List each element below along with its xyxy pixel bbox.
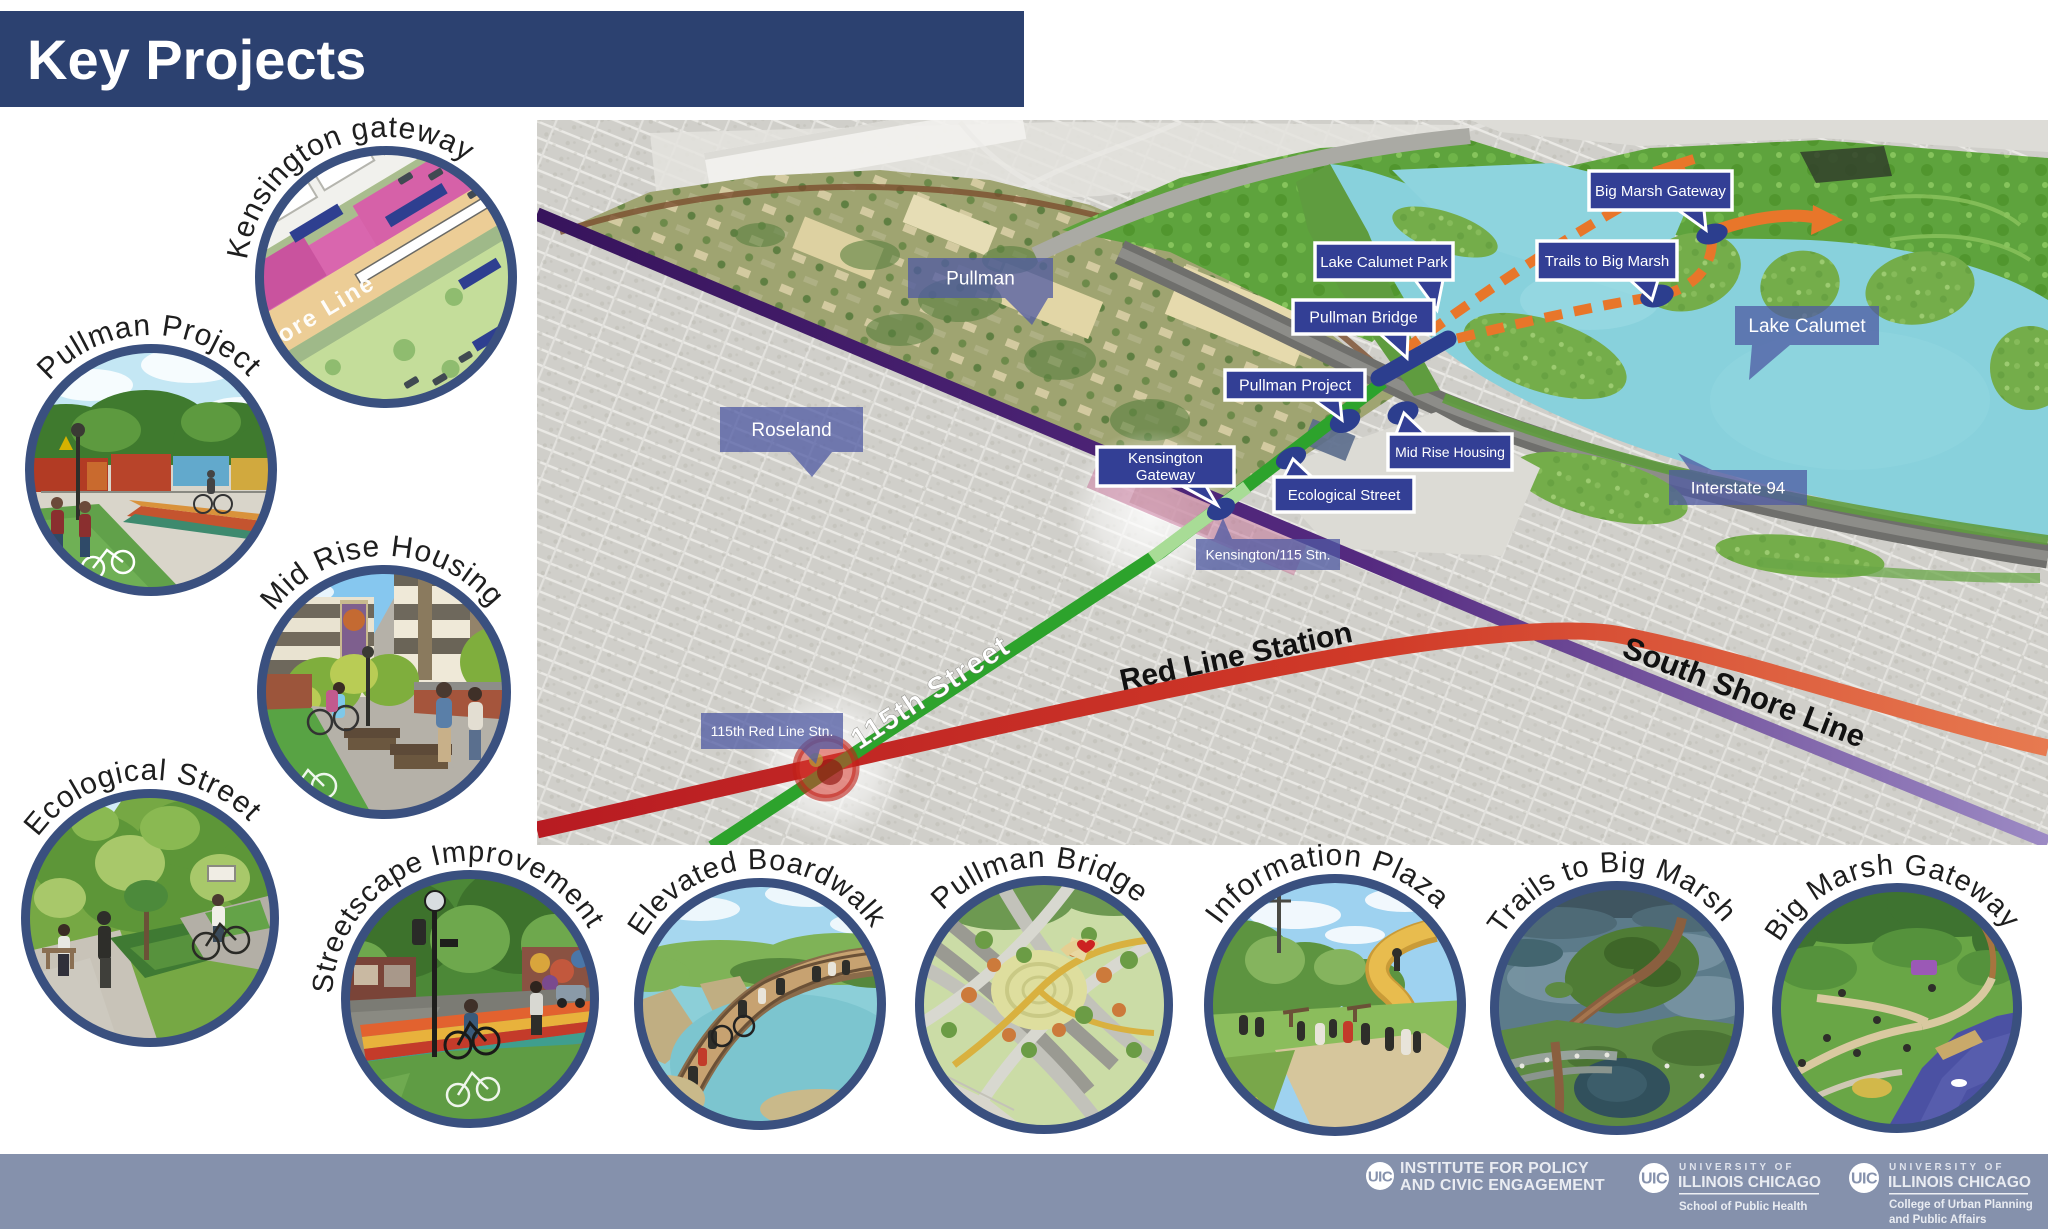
svg-text:Kensington: Kensington bbox=[1128, 450, 1203, 467]
svg-text:UNIVERSITY OF: UNIVERSITY OF bbox=[1679, 1162, 1795, 1173]
svg-text:UNIVERSITY OF: UNIVERSITY OF bbox=[1889, 1162, 2005, 1173]
svg-text:Roseland: Roseland bbox=[751, 420, 831, 441]
svg-text:Ecological Street: Ecological Street bbox=[1288, 487, 1401, 504]
svg-text:Lake Calumet: Lake Calumet bbox=[1748, 316, 1866, 337]
svg-text:UIC: UIC bbox=[1368, 1168, 1393, 1185]
svg-text:Mid Rise Housing: Mid Rise Housing bbox=[1395, 444, 1505, 460]
svg-text:Key Projects: Key Projects bbox=[27, 28, 366, 91]
svg-text:Pullman: Pullman bbox=[946, 269, 1015, 290]
svg-text:UIC: UIC bbox=[1641, 1171, 1668, 1188]
svg-text:ILLINOIS CHICAGO: ILLINOIS CHICAGO bbox=[1888, 1174, 2031, 1191]
svg-text:and Public Affairs: and Public Affairs bbox=[1889, 1214, 1986, 1226]
svg-text:Lake Calumet Park: Lake Calumet Park bbox=[1320, 254, 1448, 271]
svg-text:INSTITUTE FOR POLICY: INSTITUTE FOR POLICY bbox=[1400, 1160, 1589, 1177]
svg-text:ILLINOIS CHICAGO: ILLINOIS CHICAGO bbox=[1678, 1174, 1821, 1191]
svg-text:School of Public Health: School of Public Health bbox=[1679, 1201, 1807, 1213]
svg-text:Kensington/115 Stn.: Kensington/115 Stn. bbox=[1205, 546, 1330, 562]
svg-text:Gateway: Gateway bbox=[1136, 467, 1196, 484]
svg-text:Big Marsh Gateway: Big Marsh Gateway bbox=[1595, 183, 1726, 200]
svg-text:UIC: UIC bbox=[1851, 1171, 1878, 1188]
svg-text:Pullman Project: Pullman Project bbox=[1239, 378, 1352, 395]
svg-text:AND CIVIC ENGAGEMENT: AND CIVIC ENGAGEMENT bbox=[1400, 1177, 1605, 1194]
svg-text:Pullman Bridge: Pullman Bridge bbox=[1309, 310, 1418, 327]
svg-text:Interstate 94: Interstate 94 bbox=[1691, 478, 1786, 497]
svg-text:115th Red Line Stn.: 115th Red Line Stn. bbox=[711, 723, 834, 739]
svg-text:Trails to Big Marsh: Trails to Big Marsh bbox=[1545, 253, 1669, 270]
svg-text:College of Urban Planning: College of Urban Planning bbox=[1889, 1199, 2033, 1211]
